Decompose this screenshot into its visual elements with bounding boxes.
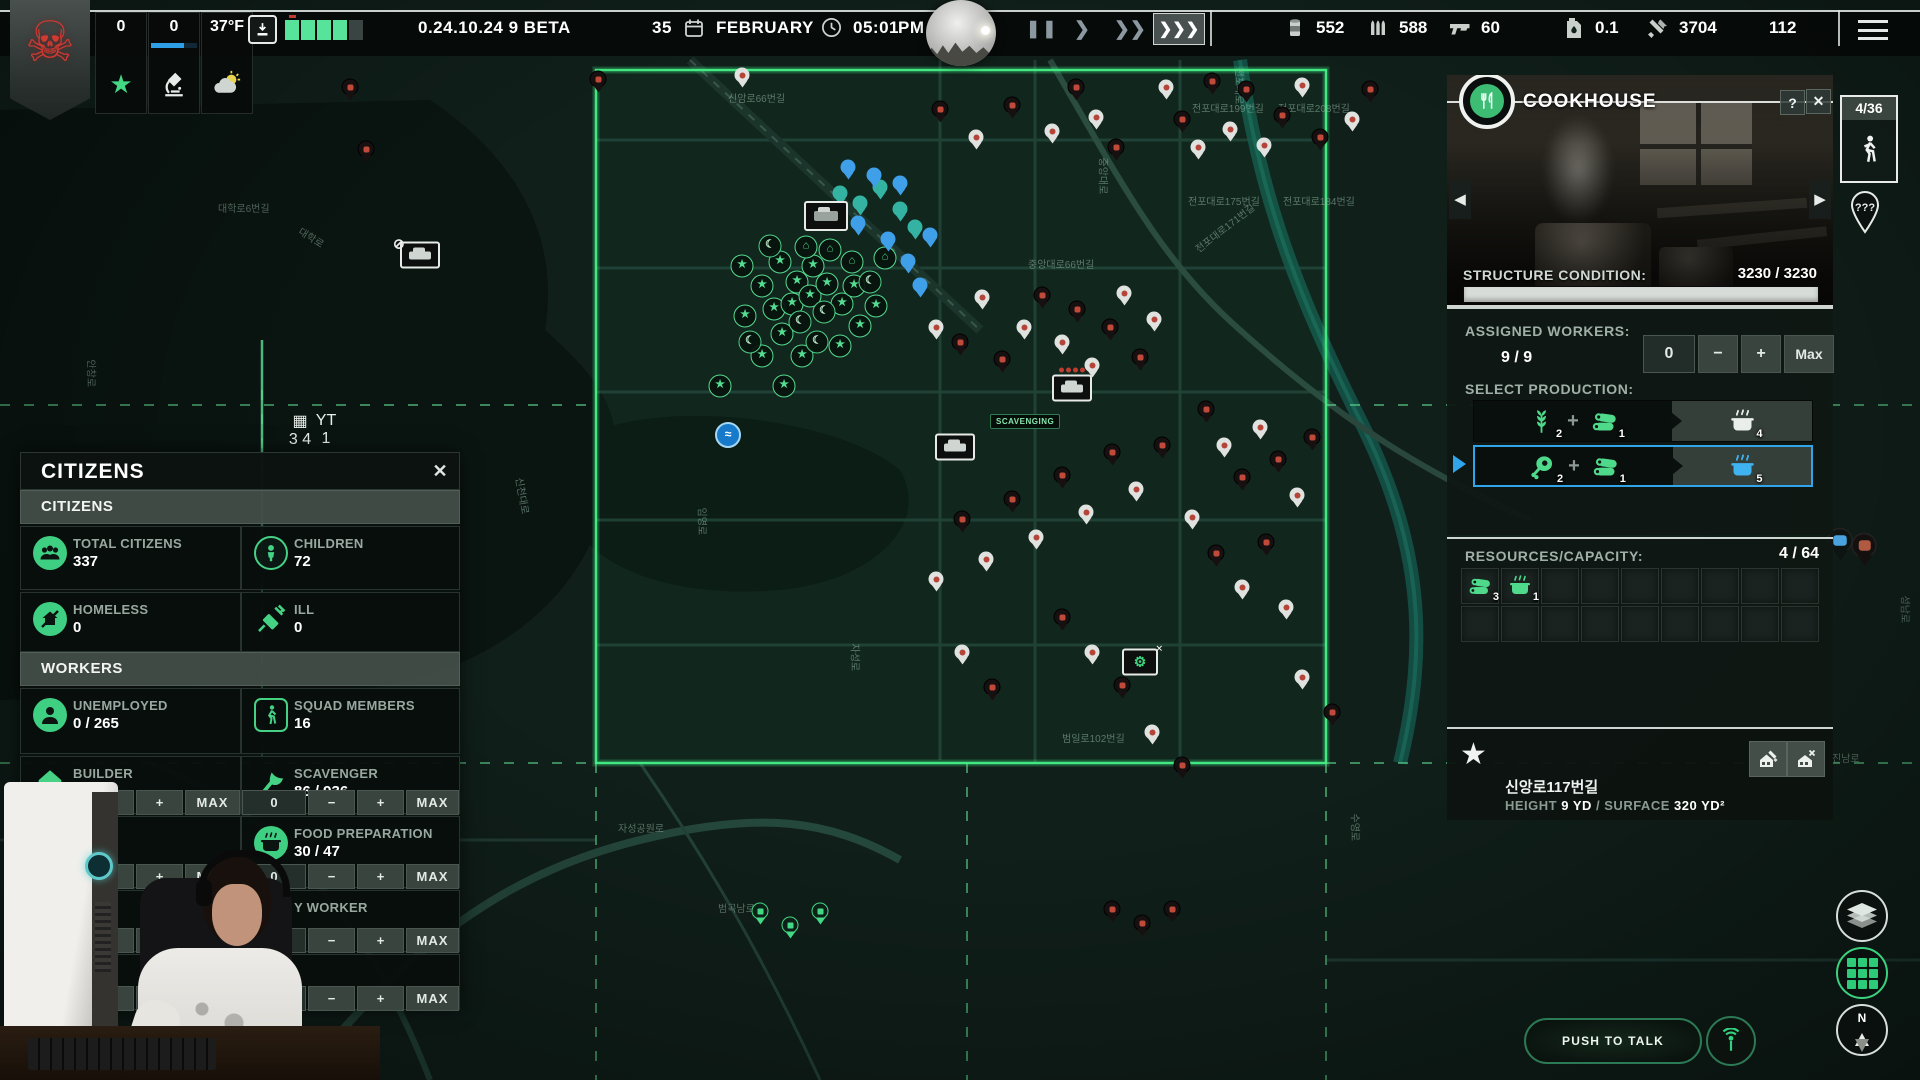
production-row-1[interactable]: 2+14 xyxy=(1473,400,1813,442)
map-marker-mini1[interactable]: ▦3 4 xyxy=(289,411,311,449)
resource-tools: 3704 xyxy=(1646,13,1717,43)
map-marker-rp[interactable] xyxy=(1362,81,1379,108)
building-footer-section: ★ 신앙로117번길 HEIGHT 9 YD / SURFACE 320 YD² xyxy=(1447,727,1833,820)
cookpot-icon xyxy=(254,826,288,860)
map-marker-wp[interactable] xyxy=(1147,312,1162,337)
cookpot-icon: 5 xyxy=(1729,453,1756,480)
inventory-slot-17[interactable] xyxy=(1741,606,1779,642)
map-marker-gs[interactable]: ★ xyxy=(734,305,757,328)
map-marker-wp[interactable] xyxy=(1257,138,1272,163)
add-worker-button[interactable]: + xyxy=(136,864,183,889)
add-worker-button[interactable]: + xyxy=(357,864,404,889)
photo-next-arrow[interactable]: ▶ xyxy=(1809,179,1831,219)
map-marker-rp[interactable] xyxy=(1208,545,1225,572)
map-marker-rp[interactable] xyxy=(1134,915,1151,942)
people-icon xyxy=(33,536,67,570)
map-marker-rp[interactable] xyxy=(1174,111,1191,138)
stat-cell-food-preparation: FOOD PREPARATION30 / 470−+MAX xyxy=(241,816,460,888)
play-button[interactable]: ❯ xyxy=(1074,14,1090,44)
remove-worker-button[interactable]: − xyxy=(308,864,355,889)
scavenging-status-label: SCAVENGING xyxy=(990,414,1060,429)
map-marker-bigrp[interactable] xyxy=(1851,533,1877,574)
map-marker-gs[interactable]: ★ xyxy=(709,375,732,398)
map-marker-rp[interactable] xyxy=(1324,704,1341,731)
street-label: 전포대로184번길 xyxy=(1283,193,1355,208)
map-marker-wp[interactable] xyxy=(1117,286,1132,311)
map-marker-wp[interactable] xyxy=(1191,140,1206,165)
map-marker-gs[interactable]: ★ xyxy=(849,315,872,338)
stat-cell-empty: 0−+MAX xyxy=(20,890,241,952)
worker-icon xyxy=(1465,343,1493,371)
worker-count-display: 0 xyxy=(1643,335,1695,373)
inventory-slot-2[interactable]: 1 xyxy=(1501,568,1539,604)
add-worker-button[interactable]: + xyxy=(357,986,404,1011)
research-segments xyxy=(285,20,363,40)
map-marker-lp[interactable] xyxy=(782,917,799,944)
map-marker-bp[interactable] xyxy=(901,254,916,279)
map-marker-wp[interactable] xyxy=(1217,438,1232,463)
street-label: 범곡남로 xyxy=(718,900,755,915)
street-label: 전포대로175번길 xyxy=(1188,193,1260,208)
map-marker-gm[interactable]: ☾ xyxy=(739,331,762,354)
pause-button[interactable]: ❚❚ xyxy=(1026,14,1059,44)
stat-cell-unemployed: UNEMPLOYED0 / 265 xyxy=(20,688,241,754)
map-marker-gm[interactable]: ☾ xyxy=(859,271,882,294)
map-marker-rp[interactable] xyxy=(1270,451,1287,478)
research-tile[interactable]: 0 xyxy=(148,12,200,114)
cookpot-icon: 4 xyxy=(1729,408,1756,435)
antenna-icon xyxy=(1718,1028,1744,1054)
photo-prev-arrow[interactable]: ◀ xyxy=(1449,179,1471,219)
map-marker-wp[interactable] xyxy=(1089,110,1104,135)
inventory-slot-11[interactable] xyxy=(1501,606,1539,642)
selected-row-pointer xyxy=(1453,455,1475,473)
map-marker-rp[interactable] xyxy=(1132,349,1149,376)
map-marker-wp[interactable] xyxy=(955,645,970,670)
cookpot-icon: 1 xyxy=(1508,574,1532,598)
workers-section-header: WORKERS xyxy=(20,652,460,686)
map-marker-wp[interactable] xyxy=(1295,78,1310,103)
worker-controls: 0−+MAX xyxy=(21,790,240,813)
map-marker-rp[interactable] xyxy=(1004,491,1021,518)
remove-worker-button[interactable]: − xyxy=(308,928,355,953)
map-marker-rp[interactable] xyxy=(1054,467,1071,494)
map-marker-wp[interactable] xyxy=(1295,670,1310,695)
stat-cell-squad-members: SQUAD MEMBERS16 xyxy=(241,688,460,754)
stat-cell-empty: 0−+MAX xyxy=(20,954,241,1010)
compass-button[interactable]: N xyxy=(1836,1004,1888,1056)
remove-worker-button[interactable]: − xyxy=(87,986,134,1011)
location-pin-icon xyxy=(1475,775,1497,805)
inventory-slot-5[interactable] xyxy=(1621,568,1659,604)
plus-icon: + xyxy=(1568,455,1580,478)
wheat-icon: 2 xyxy=(1528,408,1555,435)
map-marker-wp[interactable] xyxy=(969,130,984,155)
map-marker-mini2[interactable]: YT1 xyxy=(316,412,336,448)
map-marker-wp[interactable] xyxy=(1029,530,1044,555)
push-to-talk-label: PUSH TO TALK xyxy=(1562,1034,1664,1048)
house-repair-icon xyxy=(1756,747,1780,771)
worker-count-display: 0 xyxy=(242,864,306,889)
resources-capacity-value: 4 / 64 xyxy=(1779,545,1819,563)
structure-condition-bar xyxy=(1463,286,1819,303)
map-marker-gh[interactable]: ⌂ xyxy=(819,239,842,262)
worker-count-display: 0 xyxy=(242,928,306,953)
max-workers-button[interactable]: Max xyxy=(1784,335,1834,373)
production-row-2[interactable]: 2+15 xyxy=(1473,445,1813,487)
logs-icon: 1 xyxy=(1592,453,1619,480)
street-label: 신천대로 xyxy=(513,476,534,515)
max-workers-button[interactable]: MAX xyxy=(185,790,240,815)
street-label: 자성공원로 xyxy=(618,820,664,835)
squad-icon xyxy=(254,698,288,732)
worker-count-display: 0 xyxy=(21,986,85,1011)
map-marker-wp[interactable] xyxy=(1279,600,1294,625)
street-label: 안창로 xyxy=(85,360,100,388)
map-marker-wp[interactable] xyxy=(979,552,994,577)
map-marker-rp[interactable] xyxy=(1238,81,1255,108)
citizens-panel-title: CITIZENS xyxy=(41,460,145,484)
time-value: 05:01 xyxy=(853,18,899,38)
research-progress-bar xyxy=(151,43,197,48)
repair-building-button[interactable] xyxy=(1749,741,1787,777)
research-count: 0 xyxy=(149,13,199,36)
map-marker-bp[interactable] xyxy=(881,232,896,257)
clock-icon xyxy=(820,16,843,39)
download-icon xyxy=(254,21,271,38)
resource-fuel: 0.1 xyxy=(1562,13,1619,43)
map-marker-wp[interactable] xyxy=(1223,122,1238,147)
map-marker-rp[interactable] xyxy=(1104,901,1121,928)
child-icon xyxy=(254,536,288,570)
map-marker-lp[interactable] xyxy=(812,903,829,930)
building-panel: COOKHOUSE ? ✕ ◀ ▶ STRUCTURE CONDITION: 3… xyxy=(1447,75,1833,745)
map-marker-bp[interactable] xyxy=(867,168,882,193)
menu-icon[interactable] xyxy=(1858,20,1888,40)
workers-section-label: WORKERS xyxy=(41,660,123,677)
inventory-slot-10[interactable] xyxy=(1461,606,1499,642)
map-marker-wp[interactable] xyxy=(735,68,750,93)
map-marker-wp[interactable] xyxy=(1079,505,1094,530)
resource-building-materials: 112 xyxy=(1736,13,1796,43)
map-marker-wp[interactable] xyxy=(1145,725,1160,750)
max-workers-button[interactable]: MAX xyxy=(406,790,459,815)
add-worker-button[interactable]: + xyxy=(136,928,183,953)
map-marker-rp[interactable] xyxy=(994,351,1011,378)
map-marker-caroff[interactable]: ⊘ xyxy=(400,242,440,269)
inventory-slot-3[interactable] xyxy=(1541,568,1579,604)
map-marker-gh[interactable]: ⌂ xyxy=(795,236,818,259)
squad-capacity-value: 4/36 xyxy=(1842,97,1896,120)
map-marker-wp[interactable] xyxy=(1345,112,1360,137)
resource-canned-food: 552 xyxy=(1283,13,1344,43)
resources-capacity-section: RESOURCES/CAPACITY: 4 / 64 31 xyxy=(1447,537,1833,727)
max-workers-button[interactable]: MAX xyxy=(406,986,459,1011)
person-icon xyxy=(33,698,67,732)
stat-cell-total-citizens: TOTAL CITIZENS337 xyxy=(20,526,241,590)
map-marker-rp[interactable] xyxy=(590,71,607,98)
structure-condition-value: 3230 / 3230 xyxy=(1738,265,1817,282)
map-marker-wp[interactable] xyxy=(1159,80,1174,105)
stat-cell-builder: BUILDER39 / 760−+MAX xyxy=(20,756,241,814)
map-marker-rp[interactable] xyxy=(1114,677,1131,704)
inventory-slot-6[interactable] xyxy=(1661,568,1699,604)
inventory-slot-9[interactable] xyxy=(1781,568,1819,604)
fork-knife-icon xyxy=(1476,90,1498,112)
logs-icon: 1 xyxy=(1591,408,1618,435)
citizens-section-label: CITIZENS xyxy=(41,498,113,515)
street-label: 수영로 xyxy=(1349,814,1364,842)
map-marker-rp[interactable] xyxy=(358,141,375,168)
resources-capacity-label: RESOURCES/CAPACITY: xyxy=(1465,548,1643,564)
inventory-slot-15[interactable] xyxy=(1661,606,1699,642)
max-workers-button[interactable]: MAX xyxy=(185,928,240,953)
map-marker-rp[interactable] xyxy=(1234,469,1251,496)
inventory-slot-18[interactable] xyxy=(1781,606,1819,642)
street-label: 성남로 xyxy=(1899,596,1914,624)
add-worker-button[interactable]: + xyxy=(136,986,183,1011)
street-label: 전포대로171번길 xyxy=(1191,199,1257,255)
max-workers-button[interactable]: MAX xyxy=(185,986,240,1011)
worker-controls: 0−+MAX xyxy=(242,928,459,951)
map-marker-rp[interactable] xyxy=(1102,319,1119,346)
map-marker-wp[interactable] xyxy=(1129,482,1144,507)
map-marker-wp[interactable] xyxy=(1055,335,1070,360)
street-label: 대학로 xyxy=(296,223,327,250)
map-marker-rp[interactable] xyxy=(1068,79,1085,106)
map-marker-wp[interactable] xyxy=(1045,124,1060,149)
map-marker-gs[interactable]: ★ xyxy=(773,375,796,398)
help-button[interactable]: ? xyxy=(1780,90,1805,115)
inventory-slot-12[interactable] xyxy=(1541,606,1579,642)
map-marker-rp[interactable] xyxy=(954,511,971,538)
max-workers-button[interactable]: MAX xyxy=(406,864,459,889)
walking-person-icon xyxy=(1854,134,1884,168)
remove-worker-button[interactable]: − xyxy=(87,790,134,815)
map-marker-car[interactable] xyxy=(935,434,975,461)
stat-cell-homeless: HOMELESS0 xyxy=(20,592,241,652)
house-demolish-icon xyxy=(1794,747,1818,771)
map-marker-rp[interactable] xyxy=(1004,97,1021,124)
map-marker-wp[interactable] xyxy=(975,290,990,315)
max-workers-button[interactable]: MAX xyxy=(406,928,459,953)
worker-controls: 0−+MAX xyxy=(21,864,240,887)
map-marker-rp[interactable] xyxy=(1274,107,1291,134)
map-marker-bp[interactable] xyxy=(923,228,938,253)
map-marker-wp[interactable] xyxy=(1235,580,1250,605)
map-marker-rp[interactable] xyxy=(1164,901,1181,928)
close-button[interactable]: ✕ xyxy=(1806,89,1831,114)
homeless-icon xyxy=(33,602,67,636)
inventory-slot-16[interactable] xyxy=(1701,606,1739,642)
worker-count-display: 0 xyxy=(21,864,85,889)
plus-icon: + xyxy=(1567,410,1579,433)
citizens-panel-titlebar: CITIZENS ✕ xyxy=(20,452,460,490)
map-marker-rp[interactable] xyxy=(342,79,359,106)
add-worker-button[interactable]: + xyxy=(357,790,404,815)
grid-overlay-button[interactable] xyxy=(1836,947,1888,999)
time-meridiem: PM xyxy=(898,18,925,38)
worker-count-display: 0 xyxy=(242,986,306,1011)
street-label: 대학로6번길 xyxy=(218,200,270,215)
map-marker-wp[interactable] xyxy=(1085,358,1100,383)
map-marker-rp[interactable] xyxy=(1108,139,1125,166)
push-to-talk-button[interactable]: PUSH TO TALK xyxy=(1524,1018,1702,1064)
map-marker-wp[interactable] xyxy=(1017,320,1032,345)
stat-cell-empty: 0−+MAX xyxy=(241,954,460,1010)
map-marker-bp[interactable] xyxy=(913,278,928,303)
temperature-value: 37°F xyxy=(202,13,252,36)
map-marker-rp[interactable] xyxy=(1034,287,1051,314)
map-marker-gm[interactable]: ☾ xyxy=(813,301,836,324)
inventory-slot-1[interactable]: 3 xyxy=(1461,568,1499,604)
map-marker-rp[interactable] xyxy=(1104,444,1121,471)
map-marker-rp[interactable] xyxy=(1069,301,1086,328)
remove-worker-button[interactable]: − xyxy=(1698,335,1738,373)
building-photo: COOKHOUSE ? ✕ ◀ ▶ STRUCTURE CONDITION: 3… xyxy=(1447,75,1833,307)
worker-controls: 0−+MAX xyxy=(21,986,240,1009)
map-marker-rp[interactable] xyxy=(1204,73,1221,100)
map-marker-wp[interactable] xyxy=(1185,510,1200,535)
reputation-count: 0 xyxy=(96,13,146,36)
stat-cell-ill: ILL0 xyxy=(241,592,460,652)
inventory-slot-8[interactable] xyxy=(1741,568,1779,604)
remove-worker-button[interactable]: − xyxy=(87,864,134,889)
death-banner[interactable]: ☠ xyxy=(10,0,90,120)
assigned-workers-section: ASSIGNED WORKERS: 9 / 9 0 − + Max SELECT… xyxy=(1447,307,1833,535)
map-marker-rp[interactable] xyxy=(1174,757,1191,784)
remove-worker-button[interactable]: − xyxy=(308,790,355,815)
map-marker-gs[interactable]: ★ xyxy=(751,275,774,298)
date-day: 35 xyxy=(652,18,672,38)
worker-controls: 0−+MAX xyxy=(242,986,459,1009)
add-worker-button[interactable]: + xyxy=(136,790,183,815)
microscope-icon xyxy=(159,69,189,99)
game-screen: 전포대로199번길전포대로208번길전포대로175번길전포대로184번길전포대로… xyxy=(0,0,1920,1080)
calendar-icon xyxy=(682,16,706,40)
stat-cell-scavenger: SCAVENGER86 / 9360−+MAX xyxy=(241,756,460,814)
map-marker-bp[interactable] xyxy=(893,176,908,201)
remove-worker-button[interactable]: − xyxy=(87,928,134,953)
worker-count-display: 0 xyxy=(21,928,85,953)
date-month: FEBRUARY xyxy=(716,18,814,38)
map-marker-rp[interactable] xyxy=(1258,534,1275,561)
map-marker-tp[interactable] xyxy=(893,202,908,227)
favorite-star-icon[interactable]: ★ xyxy=(1460,737,1487,772)
unknown-location-pin[interactable]: ??? xyxy=(1848,190,1882,234)
street-label: 중앙대로66번길 xyxy=(1028,256,1094,271)
map-marker-rp[interactable] xyxy=(984,679,1001,706)
map-marker-wp[interactable] xyxy=(929,572,944,597)
cookhouse-icon xyxy=(1459,75,1515,129)
map-marker-gs[interactable]: ★ xyxy=(865,295,888,318)
street-label: 임영로 xyxy=(696,508,711,536)
building-address: 신앙로117번길 xyxy=(1505,776,1598,797)
map-marker-wrench[interactable]: ⚙✕ xyxy=(1122,649,1158,676)
ill-icon xyxy=(254,602,288,636)
worker-controls: 0−+MAX xyxy=(242,864,459,887)
map-marker-rp[interactable] xyxy=(932,101,949,128)
weather-icon xyxy=(212,69,242,99)
map-marker-rp[interactable] xyxy=(1198,401,1215,428)
inventory-slot-7[interactable] xyxy=(1701,568,1739,604)
add-worker-button[interactable]: + xyxy=(1741,335,1781,373)
map-marker-rp[interactable] xyxy=(1304,429,1321,456)
remove-worker-button[interactable]: − xyxy=(308,986,355,1011)
street-label: 범일로102번길 xyxy=(1062,730,1125,745)
building-dimensions: HEIGHT 9 YD / SURFACE 320 YD² xyxy=(1505,798,1725,813)
star-icon: ★ xyxy=(96,55,146,113)
meat-icon: 2 xyxy=(1529,453,1556,480)
resource-gun: 60 xyxy=(1448,13,1500,43)
radio-antenna-icon[interactable] xyxy=(1706,1016,1756,1066)
resource-ammo: 588 xyxy=(1366,13,1427,43)
fastest-forward-button[interactable]: ❯❯❯ xyxy=(1153,13,1205,45)
close-icon[interactable]: ✕ xyxy=(429,460,451,482)
logs-icon: 3 xyxy=(1468,574,1492,598)
map-marker-tp[interactable] xyxy=(908,220,923,245)
street-label: 진남로 xyxy=(1832,750,1860,765)
worker-count-display: 0 xyxy=(242,790,306,815)
map-marker-rp[interactable] xyxy=(1312,129,1329,156)
map-marker-swirl[interactable]: ≈ xyxy=(715,422,741,448)
map-marker-gs[interactable]: ★ xyxy=(829,335,852,358)
reputation-tile[interactable]: 0 ★ xyxy=(95,12,147,114)
research-progress-widget[interactable] xyxy=(248,15,363,44)
squad-capacity-tile[interactable]: 4/36 xyxy=(1840,95,1898,183)
map-marker-bp[interactable] xyxy=(851,216,866,241)
assigned-workers-label: ASSIGNED WORKERS: xyxy=(1465,323,1630,339)
street-label: 자성로 xyxy=(849,644,864,672)
max-workers-button[interactable]: MAX xyxy=(185,864,240,889)
worker-controls: 0−+MAX xyxy=(21,928,240,951)
map-marker-wp[interactable] xyxy=(1253,420,1268,445)
skull-icon: ☠ xyxy=(25,0,75,84)
map-marker-rp[interactable] xyxy=(1154,437,1171,464)
map-marker-wp[interactable] xyxy=(1290,488,1305,513)
citizens-panel: CITIZENS ✕ CITIZENS WORKERS TOTAL CITIZE… xyxy=(20,452,460,1010)
worker-controls: 0−+MAX xyxy=(242,790,459,813)
inventory-slot-4[interactable] xyxy=(1581,568,1619,604)
inventory-slot-14[interactable] xyxy=(1621,606,1659,642)
demolish-building-button[interactable] xyxy=(1787,741,1825,777)
stat-cell-y-worker: Y WORKER0−+MAX xyxy=(241,890,460,952)
map-marker-gm[interactable]: ☾ xyxy=(759,235,782,258)
map-marker-rp[interactable] xyxy=(1054,609,1071,636)
map-marker-gh[interactable]: ⌂ xyxy=(841,251,864,274)
add-worker-button[interactable]: + xyxy=(357,928,404,953)
map-marker-gm[interactable]: ☾ xyxy=(806,331,829,354)
worker-count-display: 0 xyxy=(21,790,85,815)
map-marker-rp[interactable] xyxy=(952,334,969,361)
weather-tile[interactable]: 37°F xyxy=(201,12,253,114)
map-marker-camp[interactable] xyxy=(804,201,848,231)
compass-north-label: N xyxy=(1858,1011,1867,1025)
inventory-slot-13[interactable] xyxy=(1581,606,1619,642)
map-marker-wp[interactable] xyxy=(1085,645,1100,670)
assigned-workers-value: 9 / 9 xyxy=(1501,349,1532,367)
layers-button[interactable] xyxy=(1836,890,1888,942)
select-production-label: SELECT PRODUCTION: xyxy=(1465,381,1634,397)
map-marker-bp[interactable] xyxy=(841,160,856,185)
day-night-indicator xyxy=(926,0,996,66)
stat-cell-children: CHILDREN72 xyxy=(241,526,460,590)
fast-forward-button[interactable]: ❯❯ xyxy=(1114,14,1146,44)
map-marker-lp[interactable] xyxy=(752,903,769,930)
structure-condition-label: STRUCTURE CONDITION: xyxy=(1463,267,1646,283)
map-marker-wp[interactable] xyxy=(929,320,944,345)
version-label: 0.24.10.24 9 BETA xyxy=(418,18,571,38)
